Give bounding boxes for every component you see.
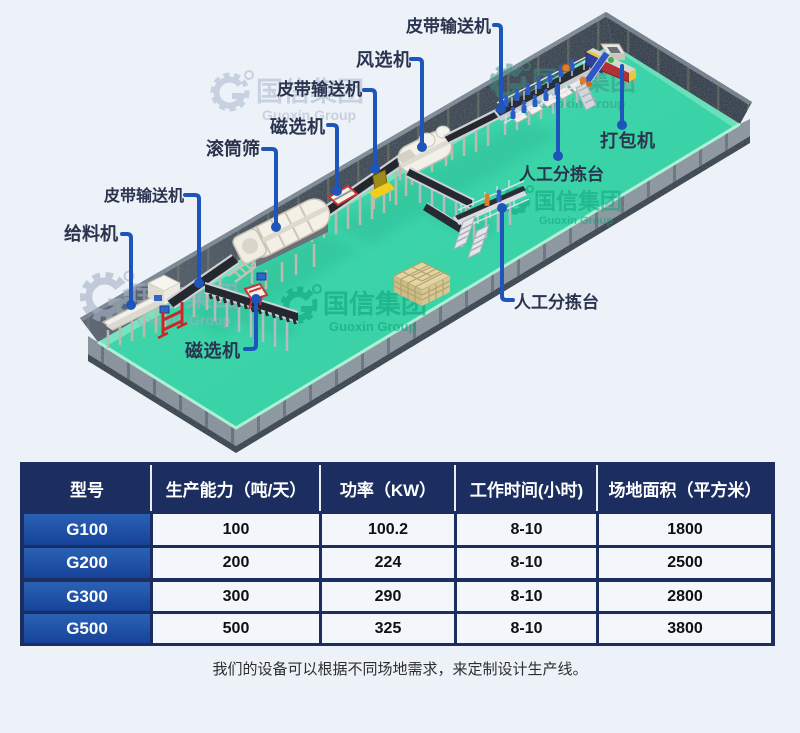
svg-text:皮带输送机: 皮带输送机 xyxy=(103,186,184,205)
svg-text:滚筒筛: 滚筒筛 xyxy=(206,138,260,159)
svg-text:皮带输送机: 皮带输送机 xyxy=(406,16,491,36)
svg-text:磁选机: 磁选机 xyxy=(270,116,326,137)
svg-text:磁选机: 磁选机 xyxy=(185,340,241,361)
svg-text:Guoxin Group: Guoxin Group xyxy=(539,215,613,227)
svg-text:人工分拣台: 人工分拣台 xyxy=(514,292,599,312)
svg-text:给料机: 给料机 xyxy=(64,223,118,244)
svg-text:Guoxin Group: Guoxin Group xyxy=(329,319,416,334)
svg-text:风选机: 风选机 xyxy=(356,50,412,70)
svg-text:打包机: 打包机 xyxy=(600,130,656,151)
svg-text:国信集团: 国信集团 xyxy=(534,189,622,214)
svg-text:人工分拣台: 人工分拣台 xyxy=(519,164,604,184)
svg-text:皮带输送机: 皮带输送机 xyxy=(277,79,362,99)
